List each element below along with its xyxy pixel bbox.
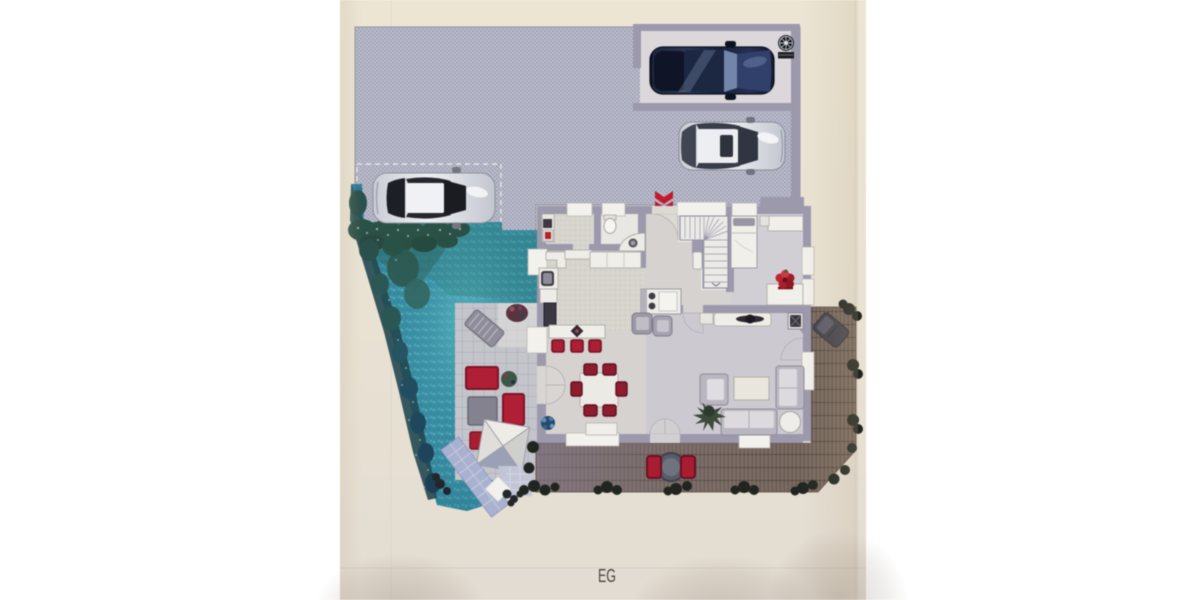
svg-text:EG: EG: [598, 566, 616, 586]
